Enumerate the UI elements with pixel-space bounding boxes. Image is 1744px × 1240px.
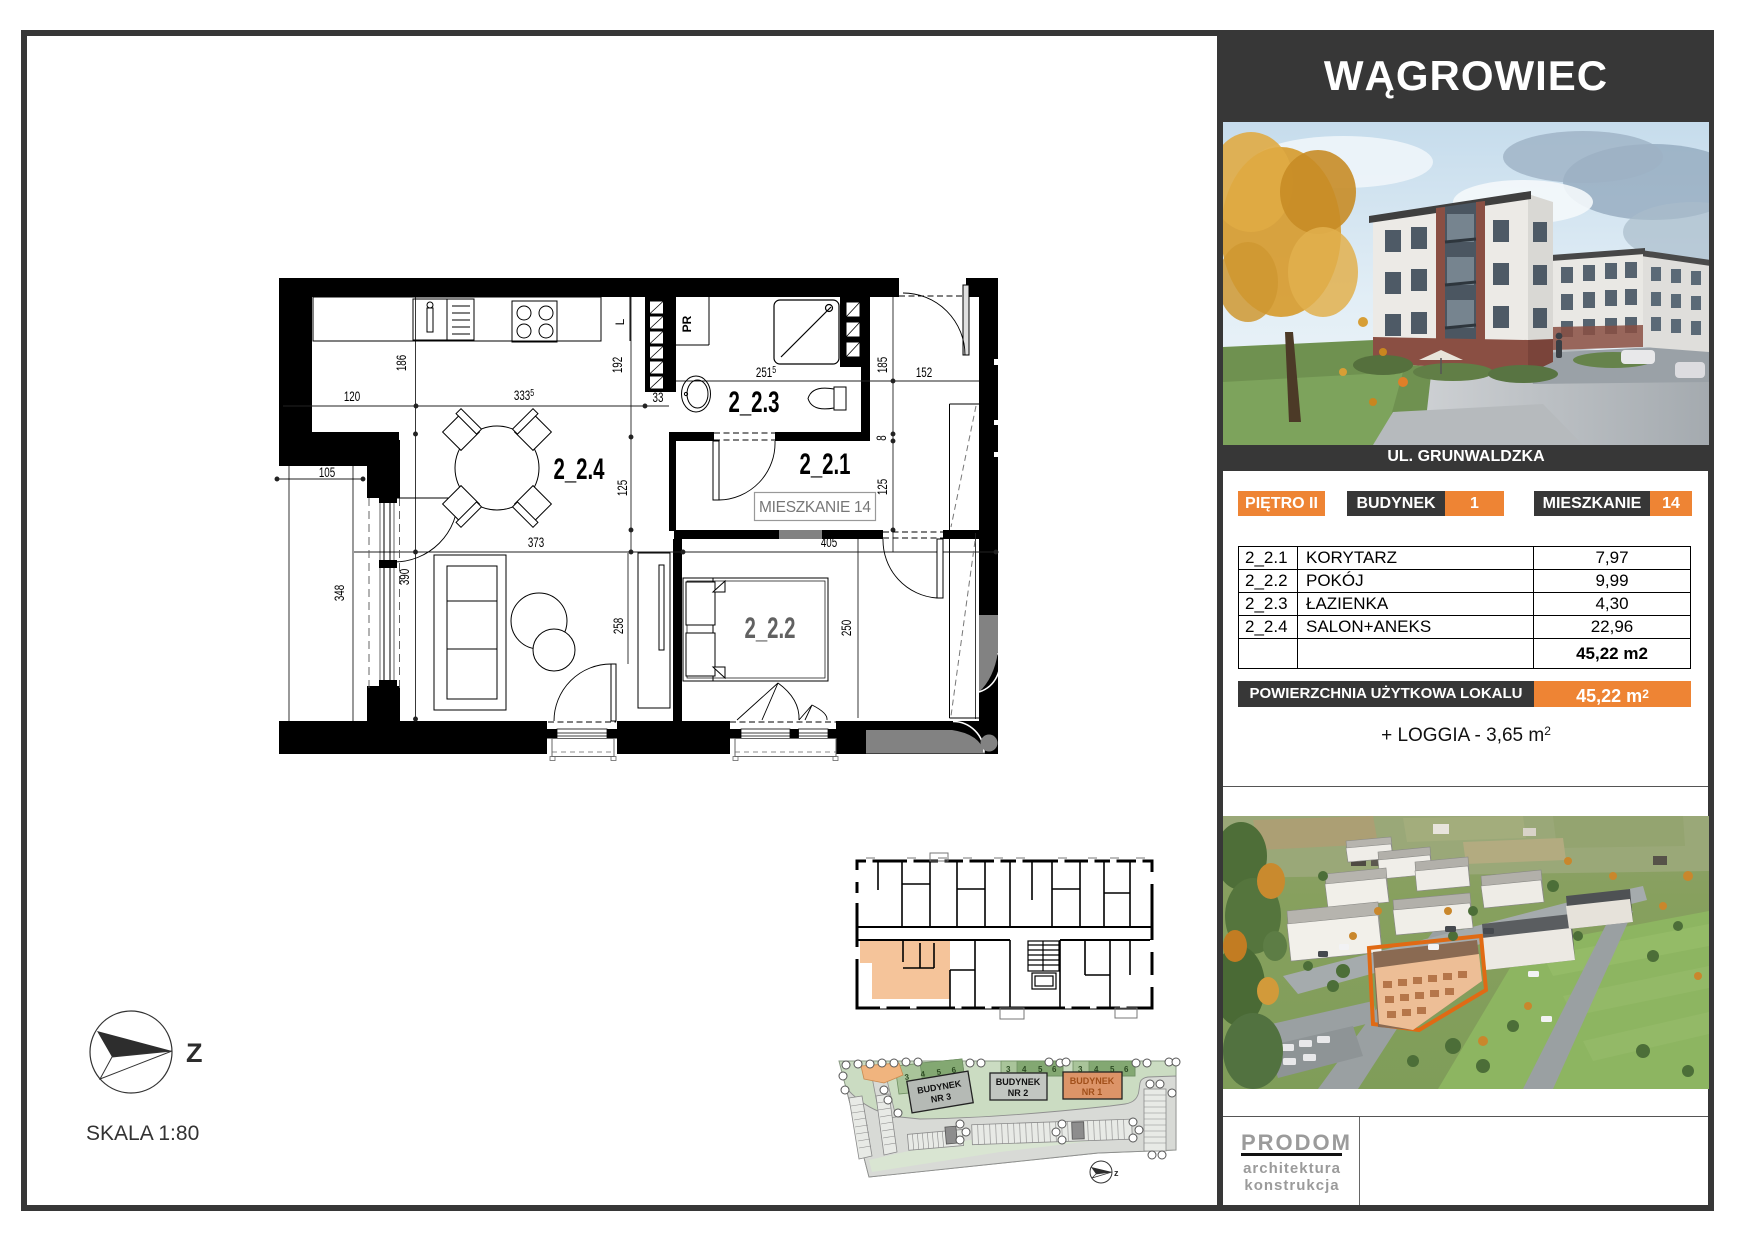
svg-text:4: 4 [1022,1065,1027,1074]
svg-text:Z: Z [186,1038,203,1068]
svg-text:125: 125 [874,479,890,496]
svg-text:125: 125 [614,480,630,497]
svg-text:192: 192 [609,357,625,374]
svg-text:405: 405 [821,534,838,550]
svg-text:5: 5 [1038,1065,1043,1074]
svg-text:348: 348 [331,585,347,602]
svg-text:2_2.3: 2_2.3 [728,386,779,419]
svg-text:BUDYNEK: BUDYNEK [996,1077,1041,1087]
svg-text:2_2.2: 2_2.2 [744,612,795,645]
svg-text:105: 105 [319,464,336,480]
svg-text:BUDYNEK: BUDYNEK [1070,1076,1115,1086]
svg-text:390: 390 [396,569,412,586]
svg-text:185: 185 [874,357,890,374]
svg-text:3: 3 [1078,1065,1083,1074]
svg-text:z: z [1114,1168,1119,1178]
svg-text:250: 250 [838,620,854,637]
svg-text:258: 258 [610,618,626,635]
svg-text:373: 373 [528,534,545,550]
svg-text:186: 186 [393,355,409,372]
svg-text:3335: 3335 [514,387,534,404]
svg-text:MIESZKANIE 14: MIESZKANIE 14 [759,499,871,516]
svg-text:5: 5 [1110,1065,1115,1074]
svg-text:4: 4 [1094,1065,1099,1074]
svg-text:L: L [613,318,627,325]
svg-text:6: 6 [1124,1065,1129,1074]
svg-text:2_2.4: 2_2.4 [553,453,605,486]
svg-text:6: 6 [1052,1065,1057,1074]
svg-text:3: 3 [1006,1065,1011,1074]
svg-text:33: 33 [653,389,664,405]
svg-text:2515: 2515 [756,364,776,381]
svg-text:8: 8 [873,435,889,441]
svg-text:152: 152 [916,364,933,380]
svg-text:120: 120 [344,388,361,404]
svg-text:NR 1: NR 1 [1082,1087,1103,1097]
svg-text:PR: PR [680,315,694,332]
svg-text:2_2.1: 2_2.1 [799,448,850,481]
svg-text:NR 2: NR 2 [1008,1088,1029,1098]
